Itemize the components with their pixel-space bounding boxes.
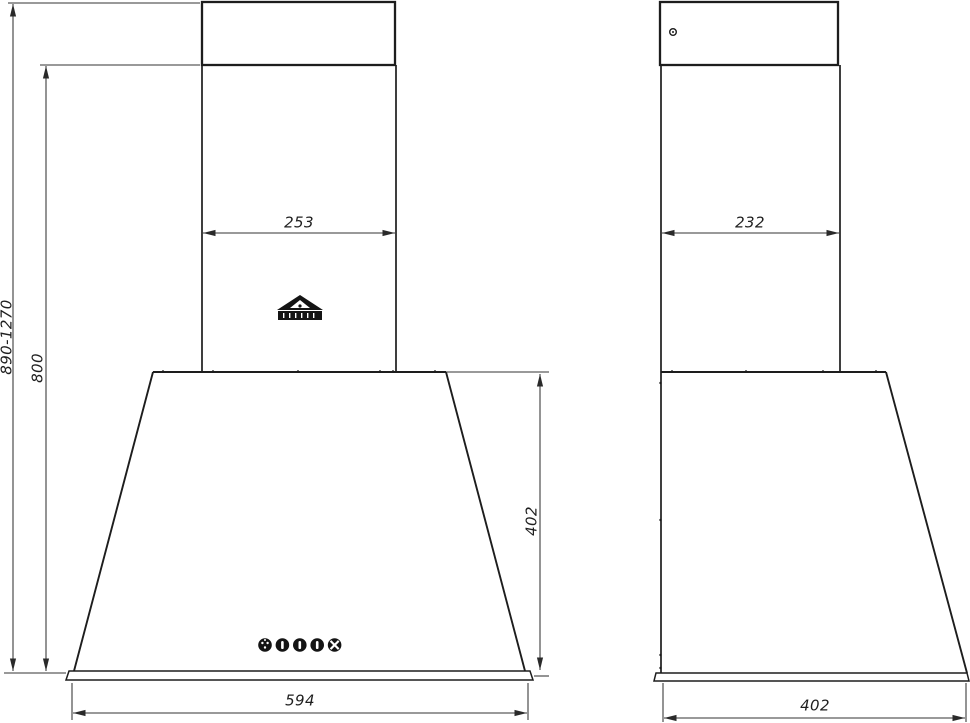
- side-bottom-rim: [654, 673, 969, 681]
- brand-logo-icon: [277, 295, 323, 320]
- dim-label-canopy-height: 402: [525, 506, 540, 536]
- front-chimney-upper-section: [202, 2, 395, 65]
- dim-label-chimney-depth: 232: [735, 216, 765, 231]
- dim-label-mount-height: 800: [31, 353, 46, 383]
- side-rivet-dots: [659, 370, 877, 669]
- dim-label-canopy-depth: 402: [800, 699, 830, 714]
- side-chimney-upper-section: [660, 2, 838, 65]
- speed-1-button-icon: [276, 638, 290, 652]
- control-panel: [258, 637, 343, 653]
- speed-3-button-icon: [310, 638, 324, 652]
- drawing-linework: [0, 0, 970, 723]
- front-view: [66, 2, 533, 680]
- side-view-dimensions: [662, 233, 966, 722]
- side-canopy: [661, 372, 967, 673]
- front-view-dimensions: [4, 3, 549, 720]
- speed-2-button-icon: [293, 638, 307, 652]
- side-chimney-duct: [661, 65, 840, 673]
- fan-button-icon: [326, 637, 342, 653]
- dim-label-total-height-range: 890-1270: [0, 299, 15, 374]
- front-canopy: [74, 372, 525, 671]
- side-view: [654, 2, 969, 681]
- dim-label-chimney-width: 253: [284, 216, 314, 231]
- light-button-icon: [258, 638, 272, 652]
- front-bottom-rim: [66, 671, 533, 680]
- dim-label-canopy-width: 594: [285, 694, 315, 709]
- dimensional-drawing: 890-1270 800 253 402 594 232 402: [0, 0, 970, 723]
